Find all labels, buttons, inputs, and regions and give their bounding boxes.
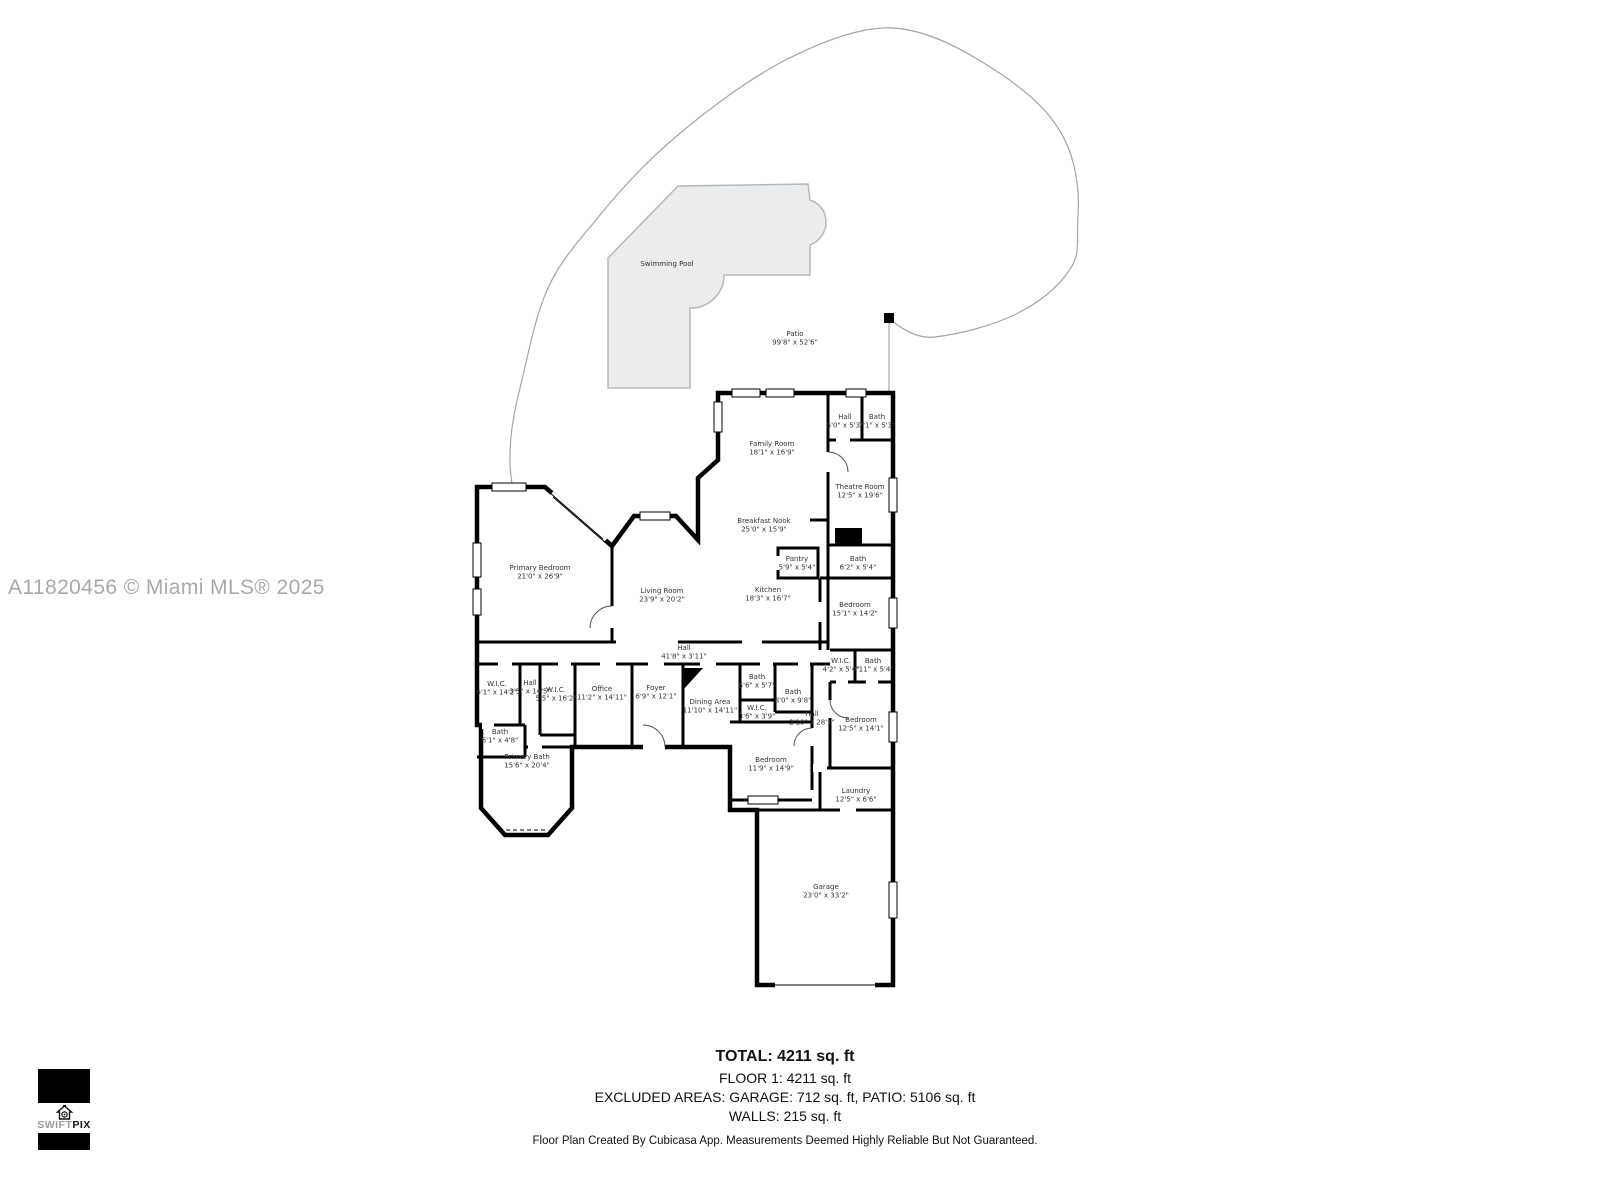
logo-wordmark: SWIFTPIX — [37, 1120, 91, 1131]
floor1-area-text: FLOOR 1: 4211 sq. ft — [0, 1070, 1570, 1086]
logo-bottom-square — [38, 1133, 90, 1150]
swimming-pool-shape — [608, 184, 826, 388]
floor-plan-drawing: Swimming PoolPatio99'8" x 52'6"Family Ro… — [0, 0, 1600, 1200]
room-label-dining-area: Dining Area11'10" x 14'11" — [683, 698, 738, 715]
swiftpix-logo: SWIFTPIX — [38, 1069, 90, 1150]
floor-plan-page: A11820456 © Miami MLS® 2025 — [0, 0, 1600, 1200]
logo-top-square — [38, 1069, 90, 1103]
room-label-theatre-room: Theatre Room12'5" x 19'6" — [834, 483, 884, 500]
disclaimer-text: Floor Plan Created By Cubicasa App. Meas… — [0, 1135, 1570, 1147]
walls-area-text: WALLS: 215 sq. ft — [0, 1108, 1570, 1124]
room-label-living-room: Living Room23'9" x 20'2" — [639, 587, 685, 604]
house-camera-icon — [56, 1105, 73, 1120]
area-summary: TOTAL: 4211 sq. ft FLOOR 1: 4211 sq. ft … — [0, 1048, 1570, 1127]
fireplace-box — [835, 528, 862, 546]
room-label-family-room: Family Room18'1" x 16'9" — [749, 440, 795, 457]
room-label-patio: Patio99'8" x 52'6" — [772, 330, 818, 347]
total-area-text: TOTAL: 4211 sq. ft — [0, 1048, 1570, 1066]
boundary-corner-marker — [884, 313, 894, 323]
room-label-primary-bedroom: Primary Bedroom21'0" x 26'9" — [510, 564, 571, 581]
logo-middle-band: SWIFTPIX — [38, 1103, 90, 1133]
excluded-areas-text: EXCLUDED AREAS: GARAGE: 712 sq. ft, PATI… — [0, 1089, 1570, 1105]
logo-text-swift: SWIFT — [37, 1119, 72, 1131]
room-label-swimming-pool: Swimming Pool — [640, 260, 693, 268]
room-label-breakfast-nook: Breakfast Nook25'0" x 15'9" — [737, 517, 791, 534]
garage-door — [775, 981, 875, 989]
logo-text-pix: PIX — [72, 1119, 90, 1131]
room-label-primary-bath: Primary Bath15'6" x 20'4" — [504, 753, 550, 770]
